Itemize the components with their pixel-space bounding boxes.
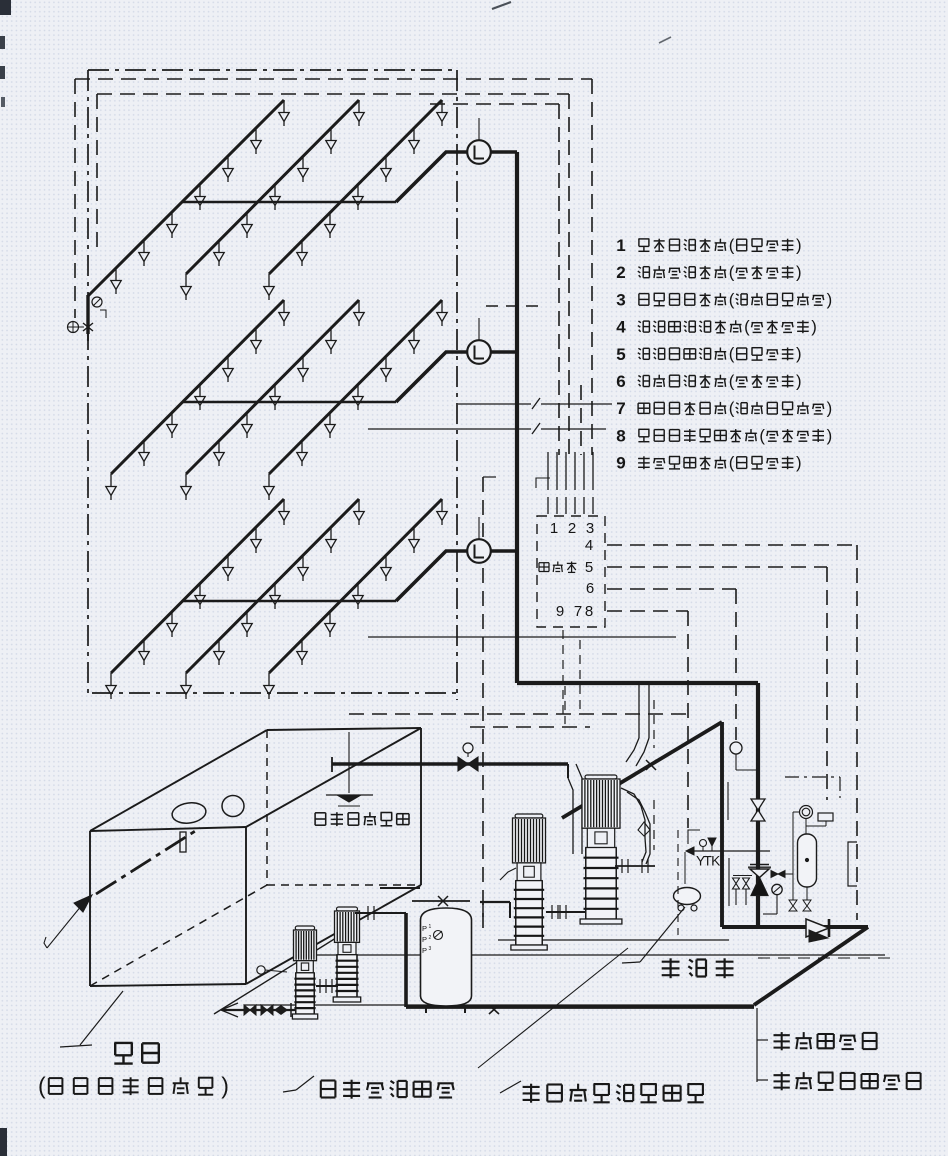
svg-text:(: ( bbox=[729, 263, 735, 282]
svg-text:7: 7 bbox=[574, 603, 582, 620]
svg-text:3: 3 bbox=[586, 520, 594, 537]
svg-text:(: ( bbox=[729, 371, 735, 390]
svg-text:): ) bbox=[221, 1072, 229, 1098]
svg-text:): ) bbox=[796, 453, 802, 472]
svg-text:(: ( bbox=[744, 317, 750, 336]
svg-text:(: ( bbox=[729, 290, 735, 309]
svg-text:2: 2 bbox=[616, 263, 625, 282]
svg-text:3: 3 bbox=[616, 290, 625, 309]
svg-text:8: 8 bbox=[616, 426, 625, 445]
svg-text:P: P bbox=[422, 935, 427, 944]
svg-text:3: 3 bbox=[429, 946, 432, 952]
svg-text:): ) bbox=[811, 317, 817, 336]
svg-text:(: ( bbox=[38, 1072, 46, 1098]
svg-text:1: 1 bbox=[550, 520, 558, 537]
svg-text:): ) bbox=[827, 290, 833, 309]
svg-text:(: ( bbox=[729, 453, 735, 472]
svg-text:5: 5 bbox=[616, 345, 625, 364]
svg-text:8: 8 bbox=[585, 603, 593, 620]
svg-text:2: 2 bbox=[429, 935, 432, 941]
svg-text:): ) bbox=[827, 426, 833, 445]
svg-text:P: P bbox=[422, 924, 427, 933]
svg-text:1: 1 bbox=[429, 924, 432, 930]
svg-text:P: P bbox=[422, 946, 427, 955]
svg-text:5: 5 bbox=[585, 559, 593, 576]
svg-text:): ) bbox=[796, 263, 802, 282]
svg-text:(: ( bbox=[729, 235, 735, 254]
svg-text:2: 2 bbox=[568, 520, 576, 537]
svg-text:4: 4 bbox=[616, 318, 626, 337]
svg-text:): ) bbox=[796, 344, 802, 363]
svg-text:): ) bbox=[796, 235, 802, 254]
svg-text:(: ( bbox=[729, 344, 735, 363]
svg-text:1: 1 bbox=[616, 236, 625, 255]
svg-text:6: 6 bbox=[616, 372, 625, 391]
svg-text:7: 7 bbox=[616, 399, 625, 418]
svg-text:4: 4 bbox=[585, 537, 593, 554]
svg-text:(: ( bbox=[729, 399, 735, 418]
svg-text:(: ( bbox=[759, 426, 765, 445]
svg-text:): ) bbox=[827, 399, 833, 418]
svg-text:9: 9 bbox=[616, 454, 625, 473]
svg-text:K: K bbox=[711, 854, 720, 869]
svg-text:6: 6 bbox=[586, 580, 594, 597]
svg-text:9: 9 bbox=[556, 603, 564, 620]
svg-text:): ) bbox=[796, 371, 802, 390]
